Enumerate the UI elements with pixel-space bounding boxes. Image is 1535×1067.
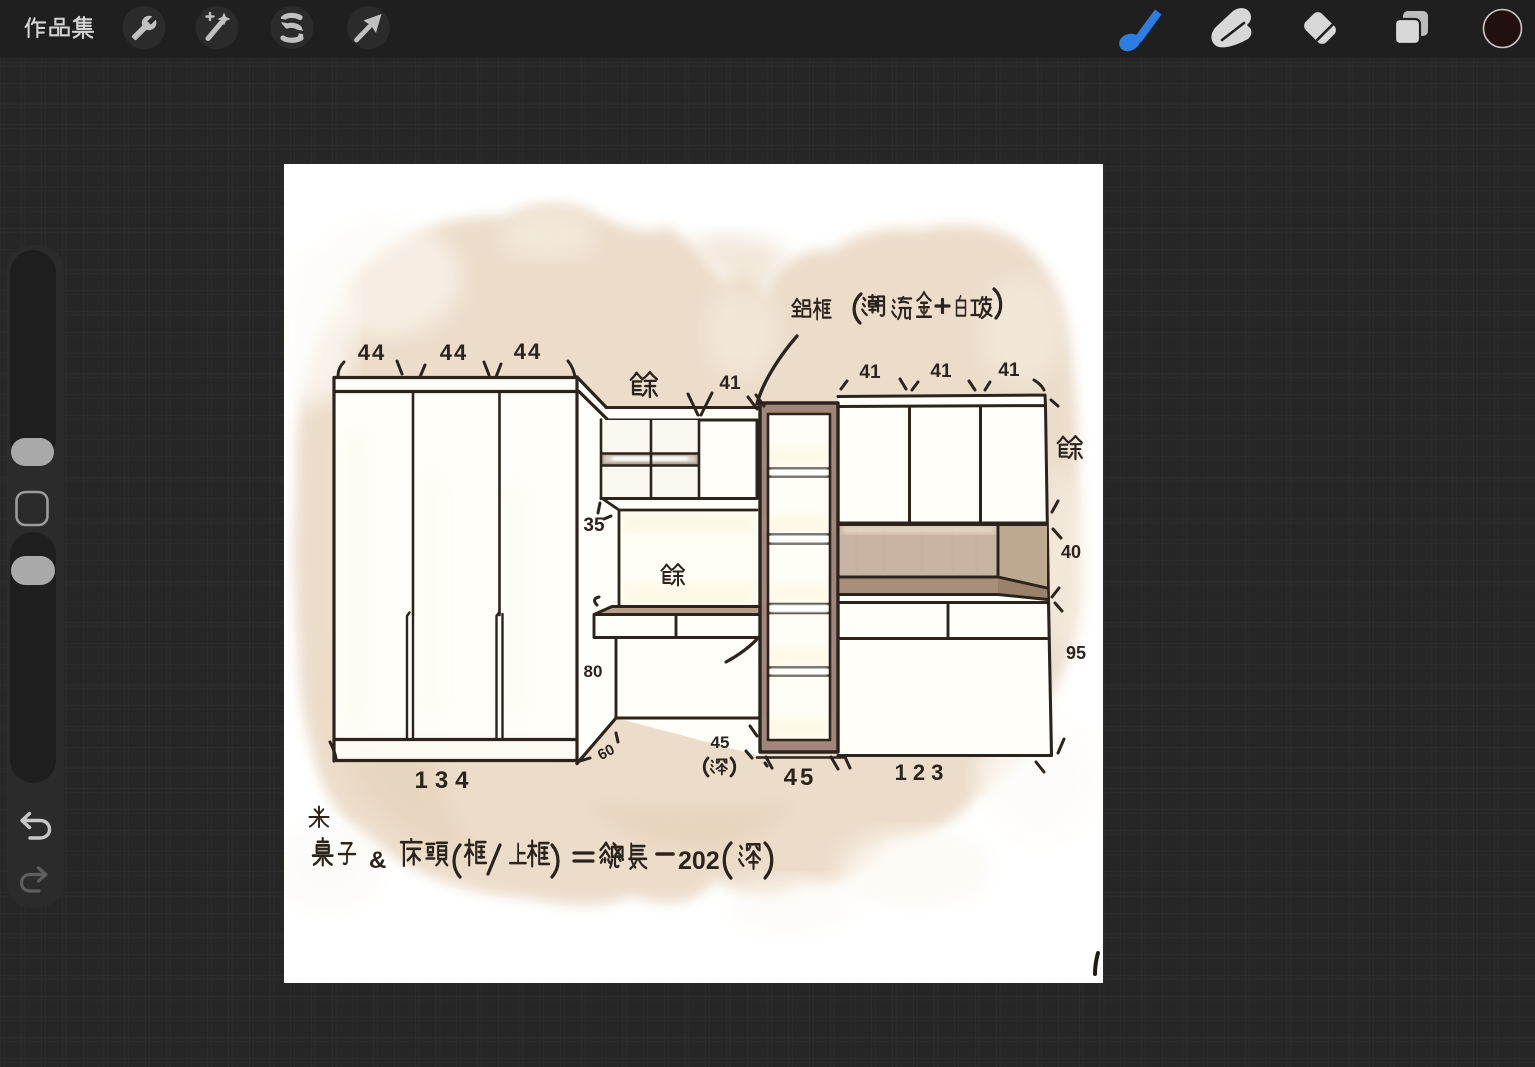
svg-text:44: 44 (358, 340, 386, 365)
svg-text:&: & (369, 847, 386, 874)
svg-text:202: 202 (678, 847, 720, 875)
svg-text:134: 134 (414, 767, 475, 794)
svg-text:41: 41 (930, 361, 952, 382)
svg-text:41: 41 (719, 373, 741, 394)
svg-text:45: 45 (711, 733, 730, 752)
svg-text:41: 41 (859, 362, 881, 383)
svg-text:44: 44 (514, 339, 542, 364)
svg-text:44: 44 (440, 340, 468, 365)
svg-text:80: 80 (584, 662, 603, 681)
svg-text:123: 123 (895, 760, 950, 785)
svg-text:35: 35 (583, 515, 605, 536)
svg-text:40: 40 (1061, 542, 1081, 562)
svg-text:45: 45 (784, 764, 817, 791)
svg-text:41: 41 (998, 360, 1020, 381)
svg-text:95: 95 (1066, 643, 1086, 663)
